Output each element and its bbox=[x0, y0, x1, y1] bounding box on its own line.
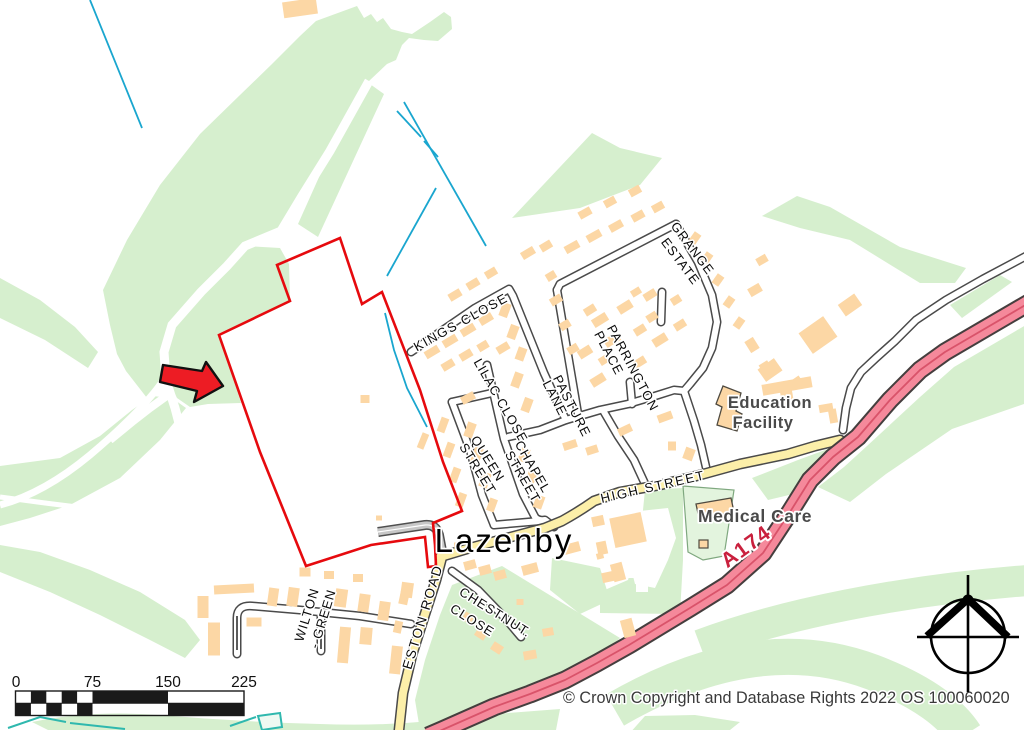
svg-text:225: 225 bbox=[231, 674, 257, 691]
svg-text:0: 0 bbox=[12, 674, 21, 691]
svg-text:75: 75 bbox=[84, 674, 101, 691]
svg-text:© Crown Copyright and Database: © Crown Copyright and Database Rights 20… bbox=[563, 689, 1010, 707]
svg-text:Facility: Facility bbox=[733, 414, 794, 432]
svg-text:Education: Education bbox=[728, 394, 812, 412]
svg-text:150: 150 bbox=[155, 674, 181, 691]
svg-text:Lazenby: Lazenby bbox=[435, 522, 574, 559]
svg-text:Medical Care: Medical Care bbox=[698, 506, 812, 526]
